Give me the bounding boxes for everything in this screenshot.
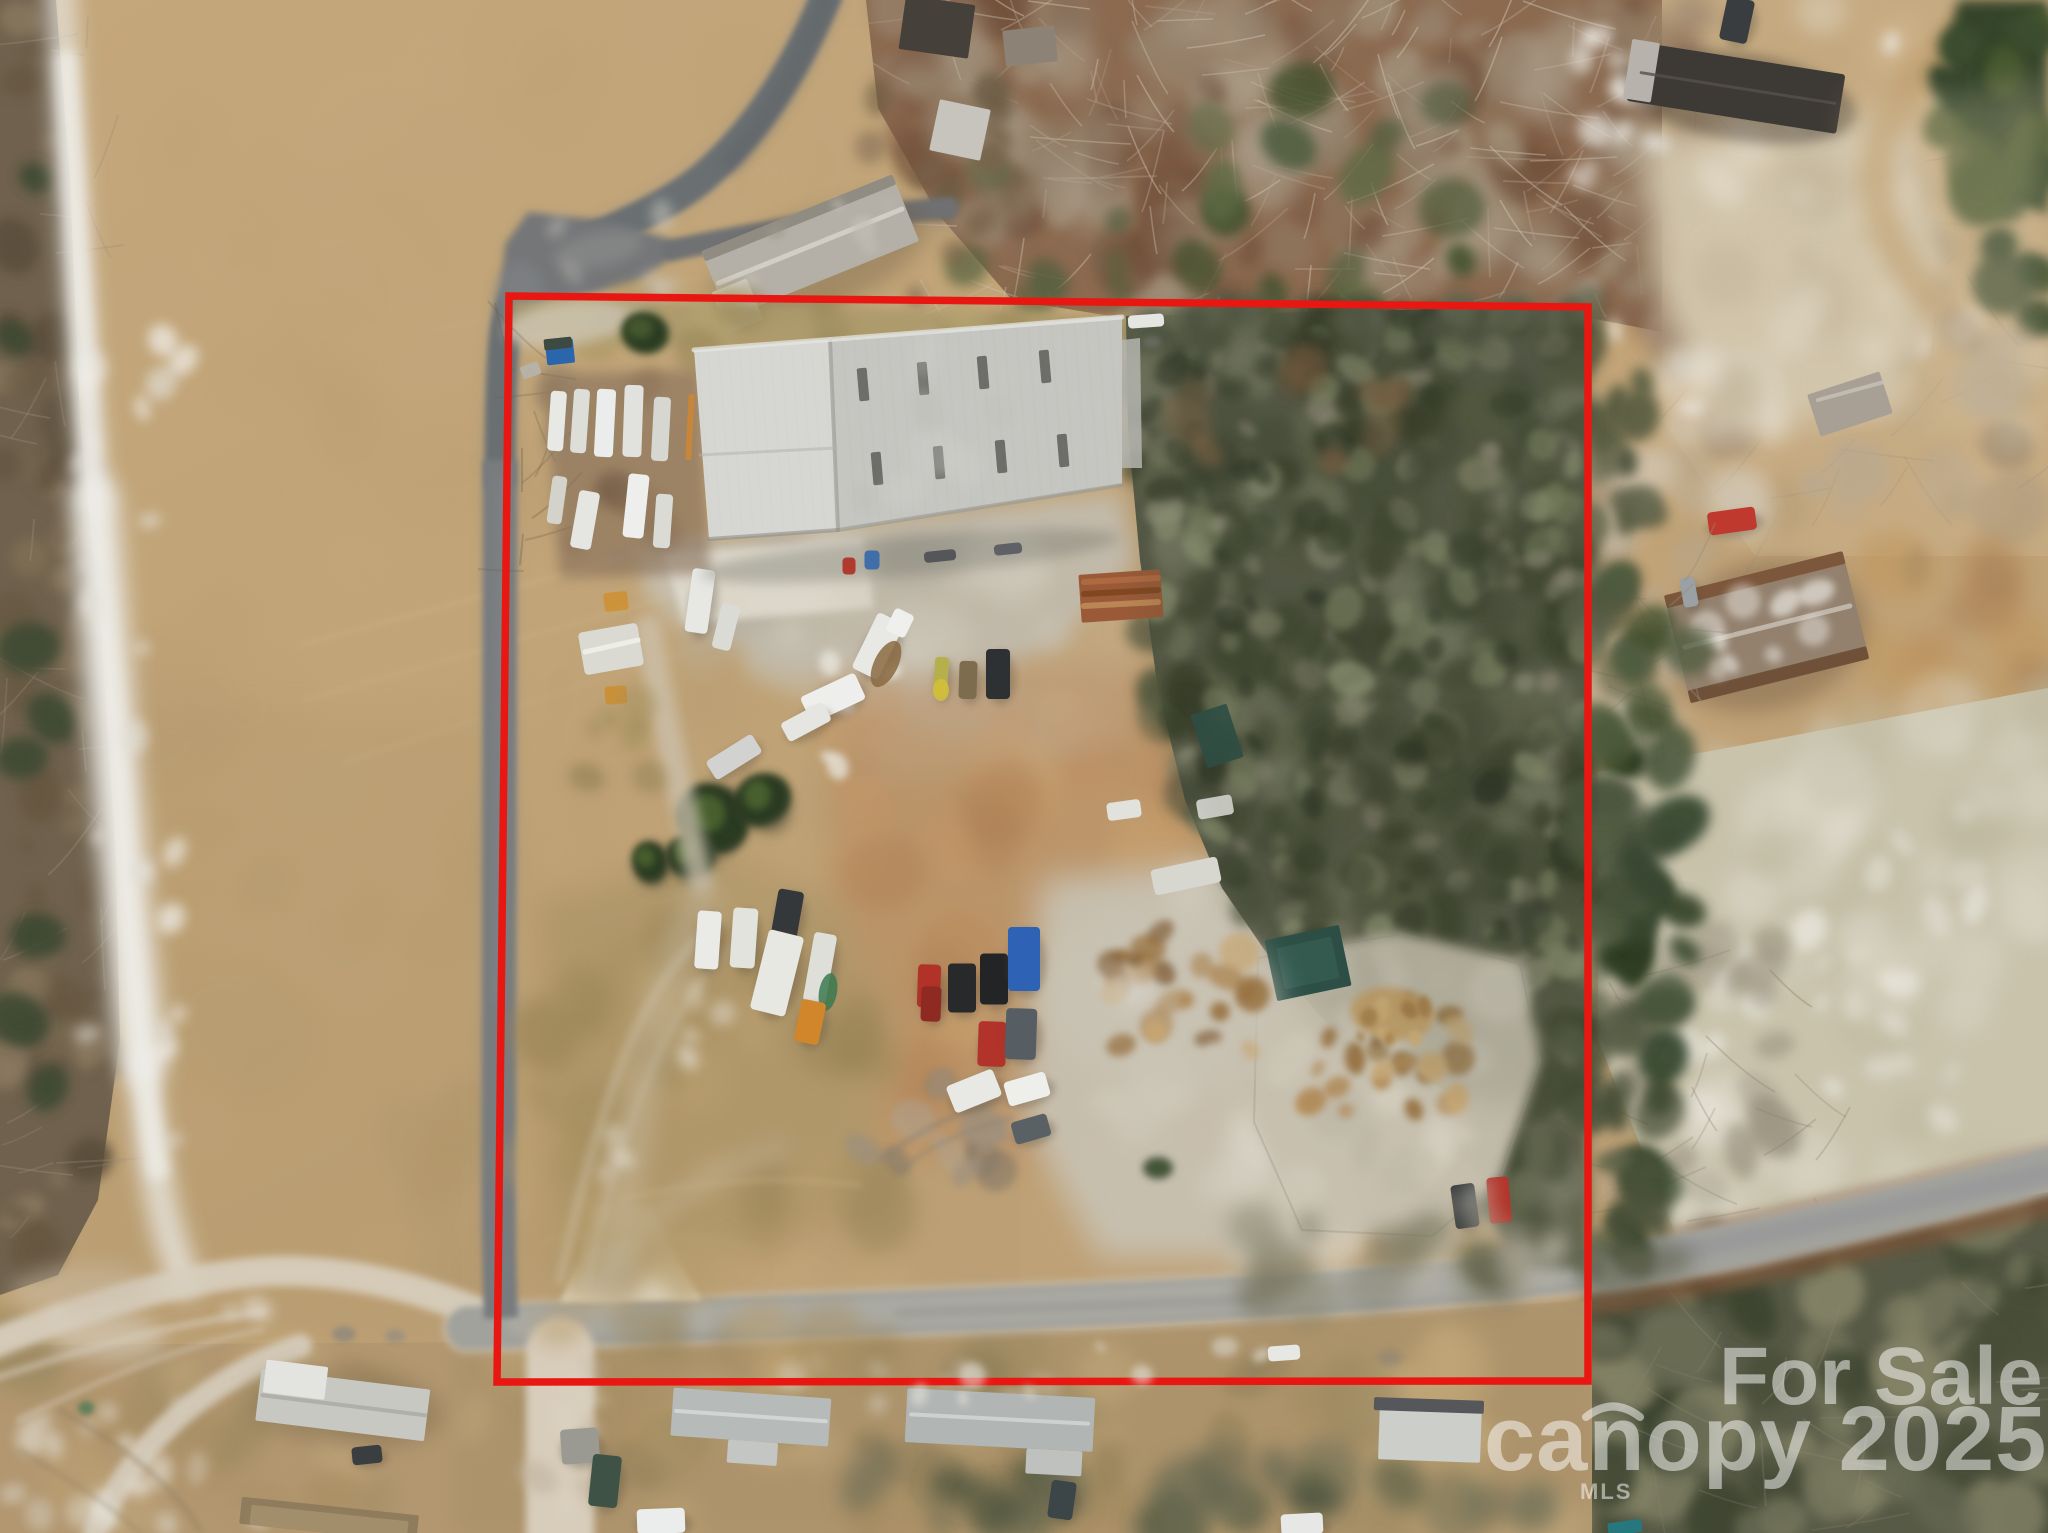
svg-text:MLS: MLS	[1580, 1479, 1632, 1504]
svg-text:canopy 2025: canopy 2025	[1484, 1388, 2047, 1490]
